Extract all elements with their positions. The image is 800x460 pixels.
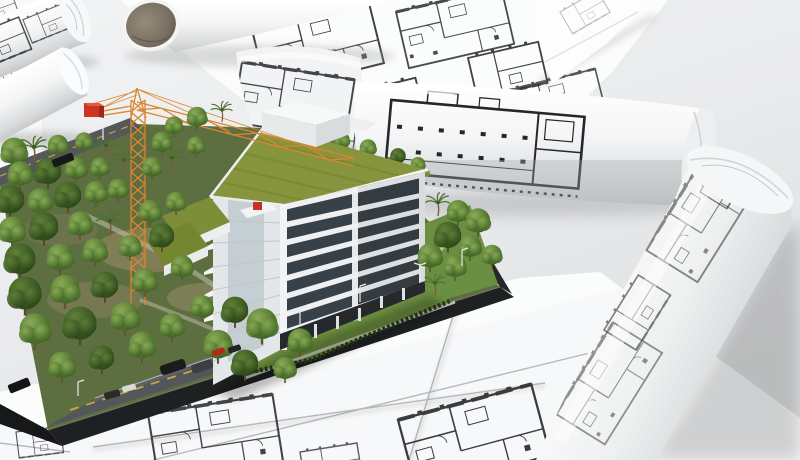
rendered-scene	[0, 0, 800, 460]
scene-canvas	[0, 0, 800, 460]
crane-load	[84, 103, 104, 118]
